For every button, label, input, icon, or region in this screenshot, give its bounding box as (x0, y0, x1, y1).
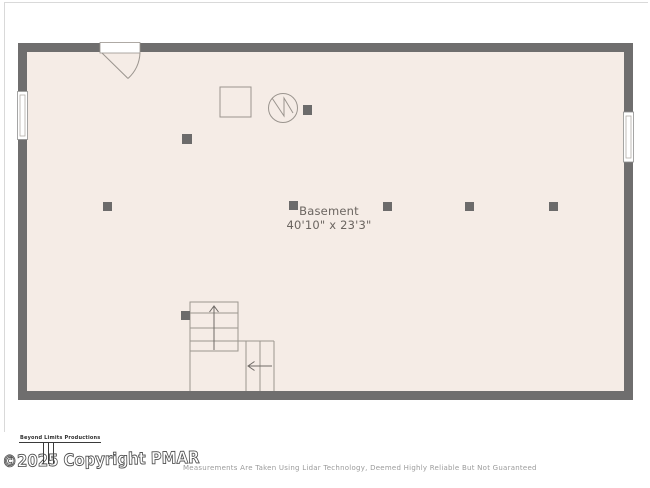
room-dimensions: 40'10" x 23'3" (254, 218, 404, 232)
support-post (103, 202, 112, 211)
wall-left-upper-segment (18, 43, 27, 91)
support-post (303, 105, 312, 115)
support-post (465, 202, 474, 211)
wall-bottom (18, 391, 633, 400)
support-post (549, 202, 558, 211)
support-post (181, 311, 190, 320)
wall-right-upper-segment (624, 43, 633, 112)
disclaimer-text: Measurements Are Taken Using Lidar Techn… (183, 464, 537, 472)
brand-name: Beyond Limits Productions (19, 435, 101, 443)
wall-left-lower-segment (18, 139, 27, 400)
window-right-icon (624, 112, 634, 162)
window-left-icon (18, 92, 28, 140)
wall-top-right-segment (140, 43, 633, 52)
room-name: Basement (254, 204, 404, 218)
floor-plan (0, 0, 650, 488)
wall-top-left-segment (18, 43, 100, 52)
support-post (182, 134, 192, 144)
wall-right-lower-segment (624, 162, 633, 400)
floor-plan-page: Basement 40'10" x 23'3" Beyond Limits Pr… (0, 0, 650, 488)
room-label: Basement 40'10" x 23'3" (254, 204, 404, 232)
